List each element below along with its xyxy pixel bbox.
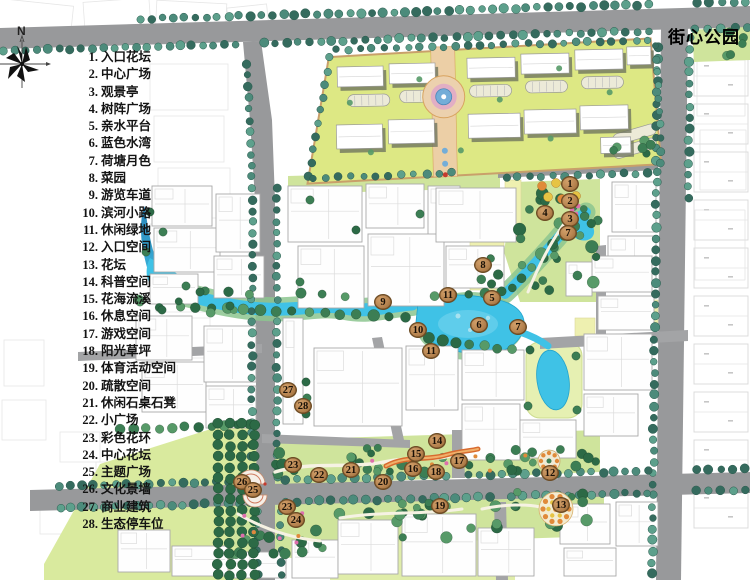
legend-item-label: 中心花坛 <box>101 448 151 462</box>
page-title: 街心公园 <box>668 23 740 48</box>
legend-item-number: 16. <box>76 308 98 325</box>
legend-item-number: 21. <box>76 395 98 412</box>
legend-item-number: 17. <box>76 326 98 343</box>
legend-item-label: 小广场 <box>101 413 139 427</box>
legend-item: 13.花坛 <box>76 257 176 274</box>
legend-item-number: 2. <box>76 66 98 83</box>
legend-item-label: 疏散空间 <box>101 379 151 393</box>
legend-item: 11.休闲绿地 <box>76 222 176 239</box>
legend-item-label: 花海流溪 <box>101 292 151 306</box>
legend-item-number: 26. <box>76 481 98 498</box>
legend-item-number: 28. <box>76 516 98 533</box>
legend-item-number: 1. <box>76 49 98 66</box>
legend-item-number: 8. <box>76 170 98 187</box>
legend-item: 24.中心花坛 <box>76 447 176 464</box>
legend-item-number: 4. <box>76 101 98 118</box>
legend-item-number: 10. <box>76 205 98 222</box>
legend-item: 14.科普空间 <box>76 274 176 291</box>
legend-item-number: 25. <box>76 464 98 481</box>
legend-item: 19.体育活动空间 <box>76 360 176 377</box>
legend-item: 3.观景亭 <box>76 84 176 101</box>
legend-item-label: 荷塘月色 <box>101 154 151 168</box>
legend-item-label: 观景亭 <box>101 85 139 99</box>
legend-item-label: 菜园 <box>101 171 126 185</box>
legend-item-number: 27. <box>76 499 98 516</box>
legend-item: 21.休闲石桌石凳 <box>76 395 176 412</box>
legend-item-label: 花坛 <box>101 258 126 272</box>
legend-item-number: 18. <box>76 343 98 360</box>
legend-item-number: 5. <box>76 118 98 135</box>
legend-item-label: 生态停车位 <box>101 517 164 531</box>
legend: 1.入口花坛2.中心广场3.观景亭4.树阵广场5.亲水平台6.蓝色水湾7.荷塘月… <box>76 49 176 533</box>
legend-item-label: 中心广场 <box>101 67 151 81</box>
legend-item-label: 休闲石桌石凳 <box>101 396 176 410</box>
legend-item: 8.菜园 <box>76 170 176 187</box>
legend-item-label: 商业建筑 <box>101 500 151 514</box>
legend-item: 20.疏散空间 <box>76 378 176 395</box>
legend-item-label: 文化景墙 <box>101 482 151 496</box>
north-label: N <box>17 24 26 38</box>
legend-item-number: 14. <box>76 274 98 291</box>
legend-item: 4.树阵广场 <box>76 101 176 118</box>
legend-item: 17.游戏空间 <box>76 326 176 343</box>
legend-item-number: 11. <box>76 222 98 239</box>
legend-item-label: 树阵广场 <box>101 102 151 116</box>
legend-item-label: 入口花坛 <box>101 50 151 64</box>
north-arrow: N <box>0 24 60 104</box>
legend-item: 16.休息空间 <box>76 308 176 325</box>
legend-item-number: 6. <box>76 135 98 152</box>
legend-item-label: 阳光草坪 <box>101 344 151 358</box>
legend-item-number: 22. <box>76 412 98 429</box>
legend-item: 25.主题广场 <box>76 464 176 481</box>
legend-item-label: 彩色花环 <box>101 431 151 445</box>
legend-item-number: 24. <box>76 447 98 464</box>
legend-item: 15.花海流溪 <box>76 291 176 308</box>
legend-item: 5.亲水平台 <box>76 118 176 135</box>
legend-item-label: 休闲绿地 <box>101 223 151 237</box>
legend-item-number: 3. <box>76 84 98 101</box>
legend-item-label: 蓝色水湾 <box>101 136 151 150</box>
legend-item: 7.荷塘月色 <box>76 153 176 170</box>
legend-item-number: 13. <box>76 257 98 274</box>
legend-item-number: 9. <box>76 187 98 204</box>
legend-item-label: 滨河小路 <box>101 206 151 220</box>
compass-icon <box>0 24 60 104</box>
legend-item-label: 主题广场 <box>101 465 151 479</box>
legend-item-label: 休息空间 <box>101 309 151 323</box>
legend-item-number: 23. <box>76 430 98 447</box>
legend-item: 26.文化景墙 <box>76 481 176 498</box>
legend-item-number: 15. <box>76 291 98 308</box>
legend-item-label: 科普空间 <box>101 275 151 289</box>
legend-item: 28.生态停车位 <box>76 516 176 533</box>
legend-item: 23.彩色花环 <box>76 430 176 447</box>
legend-item-label: 游戏空间 <box>101 327 151 341</box>
legend-item-number: 7. <box>76 153 98 170</box>
legend-item: 22.小广场 <box>76 412 176 429</box>
legend-item-number: 19. <box>76 360 98 377</box>
legend-item: 6.蓝色水湾 <box>76 135 176 152</box>
legend-item-label: 入口空间 <box>101 240 151 254</box>
legend-item-label: 亲水平台 <box>101 119 151 133</box>
legend-item-number: 20. <box>76 378 98 395</box>
legend-item-label: 体育活动空间 <box>101 361 176 375</box>
legend-item: 27.商业建筑 <box>76 499 176 516</box>
legend-item: 12.入口空间 <box>76 239 176 256</box>
legend-item: 18.阳光草坪 <box>76 343 176 360</box>
residential-compound-layer <box>305 38 662 183</box>
legend-item: 10.滨河小路 <box>76 205 176 222</box>
legend-item-label: 游览车道 <box>101 188 151 202</box>
site-plan-screenshot: N 1.入口花坛2.中心广场3.观景亭4.树阵广场5.亲水平台6.蓝色水湾7.荷… <box>0 0 750 580</box>
legend-item-number: 12. <box>76 239 98 256</box>
legend-item: 1.入口花坛 <box>76 49 176 66</box>
legend-item: 2.中心广场 <box>76 66 176 83</box>
legend-item: 9.游览车道 <box>76 187 176 204</box>
